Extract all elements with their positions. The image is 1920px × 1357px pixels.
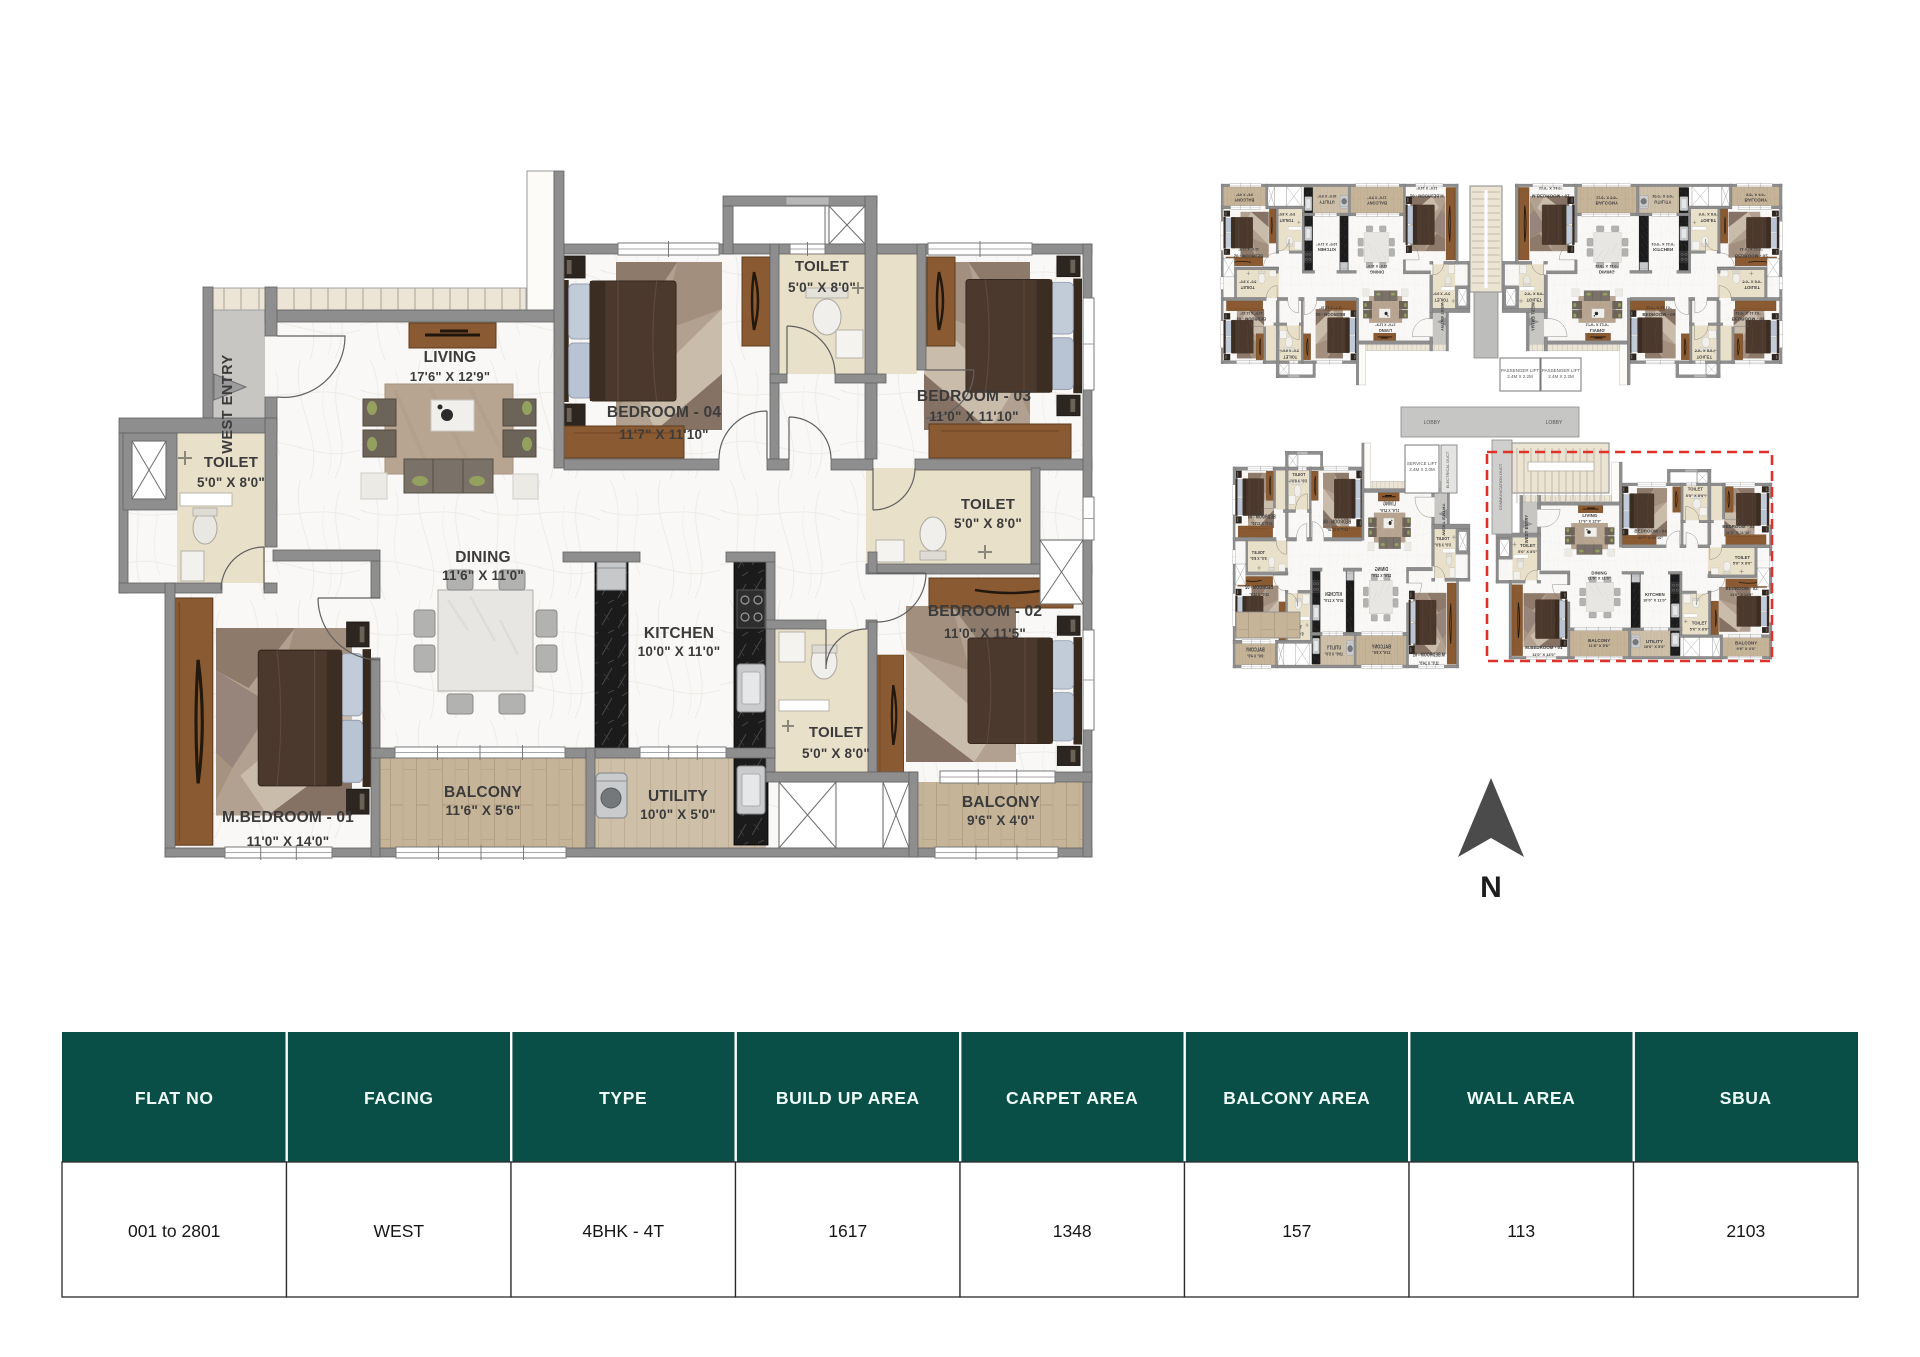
svg-text:157: 157: [1282, 1221, 1311, 1241]
svg-text:BALCONY: BALCONY: [962, 794, 1040, 811]
svg-text:11'0" X 11'5": 11'0" X 11'5": [944, 626, 1026, 641]
svg-text:11'0" X 14'0": 11'0" X 14'0": [247, 834, 330, 849]
svg-text:2103: 2103: [1726, 1221, 1765, 1241]
svg-text:TOILET: TOILET: [204, 454, 258, 471]
svg-text:BEDROOM - 03: BEDROOM - 03: [917, 388, 1032, 405]
svg-text:LOBBY: LOBBY: [1424, 420, 1441, 426]
svg-text:UTILITY: UTILITY: [648, 788, 708, 805]
svg-text:FACING: FACING: [364, 1088, 434, 1108]
svg-text:WALL AREA: WALL AREA: [1467, 1088, 1575, 1108]
svg-text:BEDROOM - 04: BEDROOM - 04: [607, 404, 722, 421]
svg-text:1617: 1617: [828, 1221, 867, 1241]
svg-text:SERVICE LIFT: SERVICE LIFT: [1407, 461, 1437, 466]
svg-text:TOILET: TOILET: [795, 258, 849, 275]
svg-text:2.4M X 2.0M: 2.4M X 2.0M: [1409, 467, 1435, 472]
svg-text:BUILD UP AREA: BUILD UP AREA: [776, 1088, 920, 1108]
svg-text:CARPET AREA: CARPET AREA: [1006, 1088, 1138, 1108]
svg-text:11'0" X 11'10": 11'0" X 11'10": [929, 409, 1019, 424]
svg-text:SBUA: SBUA: [1720, 1088, 1772, 1108]
svg-text:TOILET: TOILET: [961, 496, 1015, 513]
svg-text:PASSENGER LIFT: PASSENGER LIFT: [1542, 368, 1580, 373]
svg-text:BALCONY AREA: BALCONY AREA: [1223, 1088, 1370, 1108]
svg-text:LOBBY: LOBBY: [1546, 420, 1563, 426]
svg-text:11'7" X 11'10": 11'7" X 11'10": [619, 427, 709, 442]
svg-text:1348: 1348: [1053, 1221, 1092, 1241]
svg-text:FLAT NO: FLAT NO: [135, 1088, 214, 1108]
svg-text:LIVING: LIVING: [424, 349, 477, 366]
svg-text:COMMUNICATION DUCT: COMMUNICATION DUCT: [1498, 463, 1503, 510]
svg-text:5'0" X 8'0": 5'0" X 8'0": [954, 516, 1022, 531]
svg-text:BALCONY: BALCONY: [444, 784, 522, 801]
svg-text:M.BEDROOM - 01: M.BEDROOM - 01: [222, 809, 354, 826]
svg-text:4BHK - 4T: 4BHK - 4T: [582, 1221, 664, 1241]
svg-text:5'0" X 8'0": 5'0" X 8'0": [788, 280, 856, 295]
svg-text:PASSENGER LIFT: PASSENGER LIFT: [1501, 368, 1539, 373]
svg-text:5'0" X 8'0": 5'0" X 8'0": [197, 475, 265, 490]
svg-text:9'6" X 4'0": 9'6" X 4'0": [967, 813, 1035, 828]
svg-text:KITCHEN: KITCHEN: [644, 625, 714, 642]
svg-text:2.4M X 2.2M: 2.4M X 2.2M: [1507, 374, 1533, 379]
svg-text:ELECTRICAL DUCT: ELECTRICAL DUCT: [1445, 451, 1450, 488]
svg-text:5'0" X 8'0": 5'0" X 8'0": [802, 746, 870, 761]
svg-text:DINING: DINING: [455, 549, 510, 566]
svg-text:WEST ENTRY: WEST ENTRY: [220, 354, 236, 454]
svg-text:11'6" X 5'6": 11'6" X 5'6": [446, 803, 521, 818]
svg-text:2.4M X 2.2M: 2.4M X 2.2M: [1548, 374, 1574, 379]
svg-text:17'6" X 12'9": 17'6" X 12'9": [410, 369, 490, 384]
svg-text:113: 113: [1507, 1221, 1535, 1241]
svg-text:11'6" X 11'0": 11'6" X 11'0": [442, 568, 524, 583]
svg-text:N: N: [1480, 871, 1502, 904]
svg-text:10'0" X 11'0": 10'0" X 11'0": [638, 644, 721, 659]
svg-text:BEDROOM - 02: BEDROOM - 02: [928, 603, 1042, 620]
svg-text:TOILET: TOILET: [809, 724, 863, 741]
svg-text:10'0" X 5'0": 10'0" X 5'0": [640, 807, 716, 822]
svg-text:TYPE: TYPE: [599, 1088, 647, 1108]
svg-text:001 to 2801: 001 to 2801: [128, 1221, 220, 1241]
svg-text:WEST: WEST: [374, 1221, 425, 1241]
